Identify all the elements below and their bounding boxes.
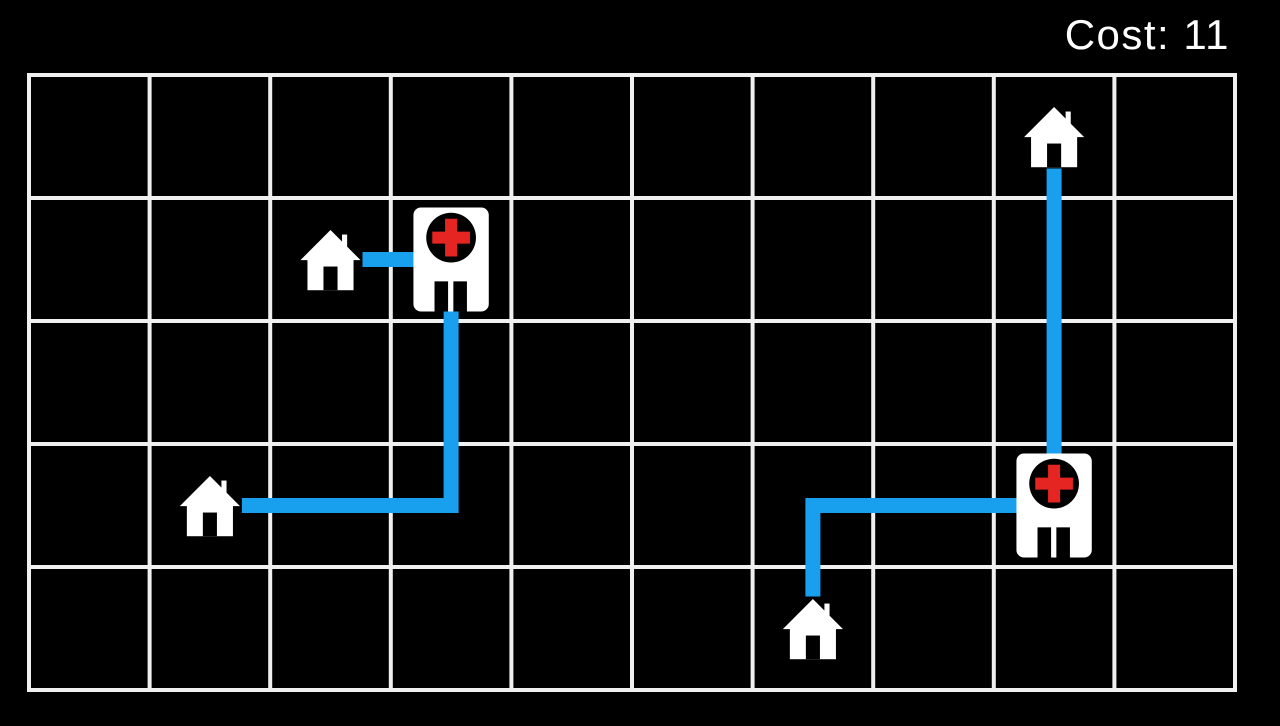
house-mid-left-icon[interactable] [300,230,360,290]
hospital-left-icon[interactable] [413,208,488,312]
entities [180,107,1092,659]
cost-label: Cost: 11 [1065,11,1230,58]
game-stage: Cost: 11 [0,0,1280,726]
house-bottom-icon[interactable] [783,599,843,659]
grid-board[interactable] [0,0,1280,726]
house-top-right-icon[interactable] [1024,107,1084,167]
routes [242,169,1054,597]
cost-display: Cost: 11 [1065,14,1230,56]
house-lower-left-icon[interactable] [180,476,240,536]
hospital-right-icon[interactable] [1016,454,1091,558]
